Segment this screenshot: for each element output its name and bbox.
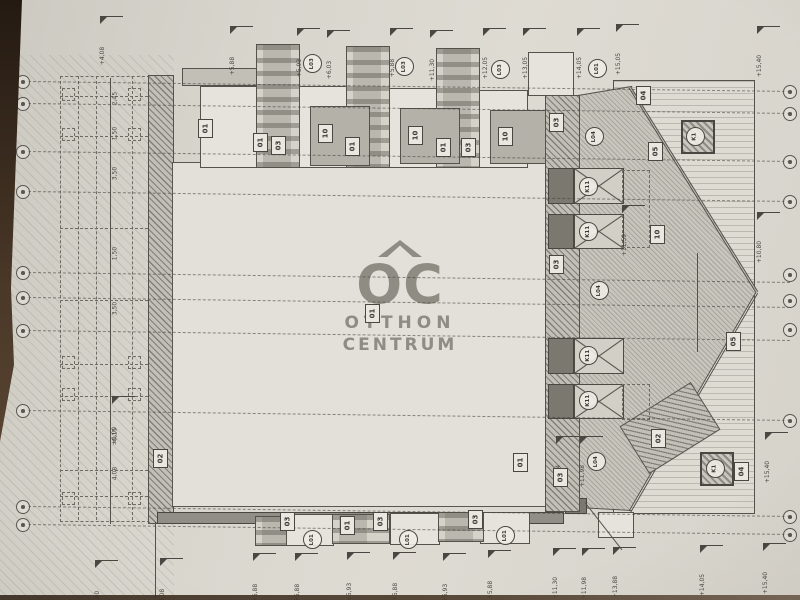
- axis-bubble: [16, 185, 30, 199]
- column-marker: [62, 356, 75, 369]
- elevation-flag-icon: [393, 553, 400, 560]
- pier: [285, 514, 334, 546]
- chimney: [681, 120, 715, 154]
- axis-bubble: [16, 145, 30, 159]
- elevation-flag-icon: [297, 29, 304, 36]
- axis-bubble: [783, 155, 797, 169]
- elevation-flag-icon: [616, 25, 623, 32]
- axis-bubble: [783, 107, 797, 121]
- left-structure-line: [60, 300, 148, 301]
- elevation-flag-icon: [327, 31, 334, 38]
- axis-bubble: [783, 195, 797, 209]
- axis-bubble: [783, 510, 797, 524]
- elevation-flag-icon: [347, 552, 370, 553]
- stair-strip: [332, 514, 390, 544]
- pier: [390, 513, 440, 545]
- elevation-flag-icon: [757, 213, 764, 220]
- elevation-flag-icon: [160, 558, 183, 559]
- wall-edge-line: [155, 522, 156, 598]
- elevation-flag-icon: [523, 29, 530, 36]
- pier: [200, 86, 258, 168]
- window-jamb: [548, 384, 574, 419]
- elevation-flag-icon: [483, 28, 506, 29]
- dimension-chain-line: [110, 78, 111, 524]
- axis-bubble: [783, 414, 797, 428]
- elevation-flag-icon: [613, 547, 636, 548]
- elevation-flag-icon: [100, 17, 107, 24]
- elevation-flag-icon: [765, 433, 772, 440]
- elevation-flag-icon: [613, 548, 620, 555]
- elevation-flag-icon: [765, 432, 788, 433]
- elevation-flag-icon: [483, 29, 490, 36]
- opening-tag: L03: [303, 54, 322, 73]
- elevation-flag-icon: [253, 553, 276, 554]
- window-jamb: [548, 338, 574, 374]
- elevation-flag-icon: [757, 212, 780, 213]
- main-hall: [172, 162, 547, 507]
- axis-bubble: [16, 291, 30, 305]
- left-structure-line: [60, 470, 148, 471]
- axis-bubble: [16, 266, 30, 280]
- slab-block: [490, 110, 547, 164]
- column-marker: [128, 356, 141, 369]
- elevation-flag-icon: [327, 30, 350, 31]
- elevation-flag-icon: [582, 549, 589, 556]
- pier: [480, 512, 530, 544]
- table-edge: [0, 595, 800, 600]
- stair-strip: [255, 516, 287, 546]
- elevation-flag-icon: [488, 550, 511, 551]
- axis-bubble: [16, 500, 30, 514]
- slab-block: [310, 106, 370, 166]
- elevation-flag-icon: [700, 546, 707, 553]
- elevation-flag-icon: [347, 553, 354, 560]
- left-structure-line: [132, 76, 133, 520]
- axis-bubble: [783, 294, 797, 308]
- stair-strip: [256, 44, 300, 168]
- elevation-flag-icon: [443, 554, 450, 561]
- stair-strip: [438, 512, 484, 542]
- elevation-flag-icon: [757, 27, 764, 34]
- elevation-flag-icon: [95, 560, 118, 561]
- right-wall: [545, 95, 580, 512]
- left-wall: [148, 75, 174, 524]
- elevation-flag-icon: [393, 552, 416, 553]
- elevation-flag-icon: [523, 28, 546, 29]
- elevation-flag-icon: [390, 29, 397, 36]
- column-marker: [62, 492, 75, 505]
- axis-bubble: [16, 404, 30, 418]
- column-marker: [62, 128, 75, 141]
- window-projection: [622, 170, 650, 248]
- elevation-flag-icon: [430, 30, 453, 31]
- column-marker: [128, 128, 141, 141]
- elevation-flag-icon: [553, 549, 560, 556]
- axis-bubble: [16, 324, 30, 338]
- opening-tag: L03: [491, 60, 510, 79]
- left-structure-outline: [60, 76, 150, 522]
- chimney: [700, 452, 734, 486]
- elevation-flag-icon: [763, 544, 770, 551]
- axis-bubble: [783, 85, 797, 99]
- top-beam: [182, 68, 260, 86]
- elevation-flag-icon: [763, 543, 786, 544]
- table-edge: [0, 0, 24, 480]
- left-structure-line: [78, 76, 79, 520]
- left-structure-line: [96, 76, 97, 520]
- roof-window: [574, 168, 624, 204]
- elevation-flag-icon: [295, 553, 318, 554]
- opening-tag: L01: [588, 59, 607, 78]
- roof-window: [574, 214, 624, 249]
- axis-bubble: [783, 323, 797, 337]
- roof-access-block: [528, 52, 574, 96]
- elevation-flag-icon: [160, 559, 167, 566]
- window-jamb: [548, 214, 574, 249]
- column-marker: [62, 88, 75, 101]
- roof-window: [574, 384, 624, 419]
- window-projection: [622, 384, 650, 420]
- column-marker: [128, 492, 141, 505]
- elevation-flag-icon: [95, 561, 102, 568]
- elevation-flag-icon: [553, 548, 576, 549]
- elevation-flag-icon: [577, 28, 600, 29]
- elevation-flag-icon: [488, 551, 495, 558]
- elevation-flag-icon: [616, 24, 639, 25]
- elevation-flag-icon: [230, 27, 237, 34]
- left-structure-line: [60, 228, 148, 229]
- column-marker: [128, 388, 141, 401]
- axis-bubble: [783, 268, 797, 282]
- elevation-flag-icon: [100, 16, 123, 17]
- elevation-flag-icon: [582, 548, 605, 549]
- roof-ridge-line: [697, 253, 698, 352]
- elevation-flag-icon: [230, 26, 253, 27]
- elevation-flag-icon: [297, 28, 320, 29]
- elevation-flag-icon: [430, 31, 437, 38]
- elevation-flag-icon: [757, 26, 780, 27]
- elevation-flag-icon: [295, 554, 302, 561]
- axis-bubble: [783, 528, 797, 542]
- elevation-flag-icon: [253, 554, 260, 561]
- elevation-flag-icon: [390, 28, 413, 29]
- elevation-flag-icon: [700, 545, 723, 546]
- roof-window: [574, 338, 624, 374]
- blueprint-photo: OC OTTHON CENTRUM 0101031001100103100405…: [0, 0, 800, 600]
- window-jamb: [548, 168, 574, 204]
- elevation-flag-icon: [577, 29, 584, 36]
- opening-tag: L03: [395, 57, 414, 76]
- column-marker: [128, 88, 141, 101]
- axis-bubble: [16, 518, 30, 532]
- slab-block: [400, 108, 460, 164]
- elevation-flag-icon: [443, 553, 466, 554]
- column-marker: [62, 388, 75, 401]
